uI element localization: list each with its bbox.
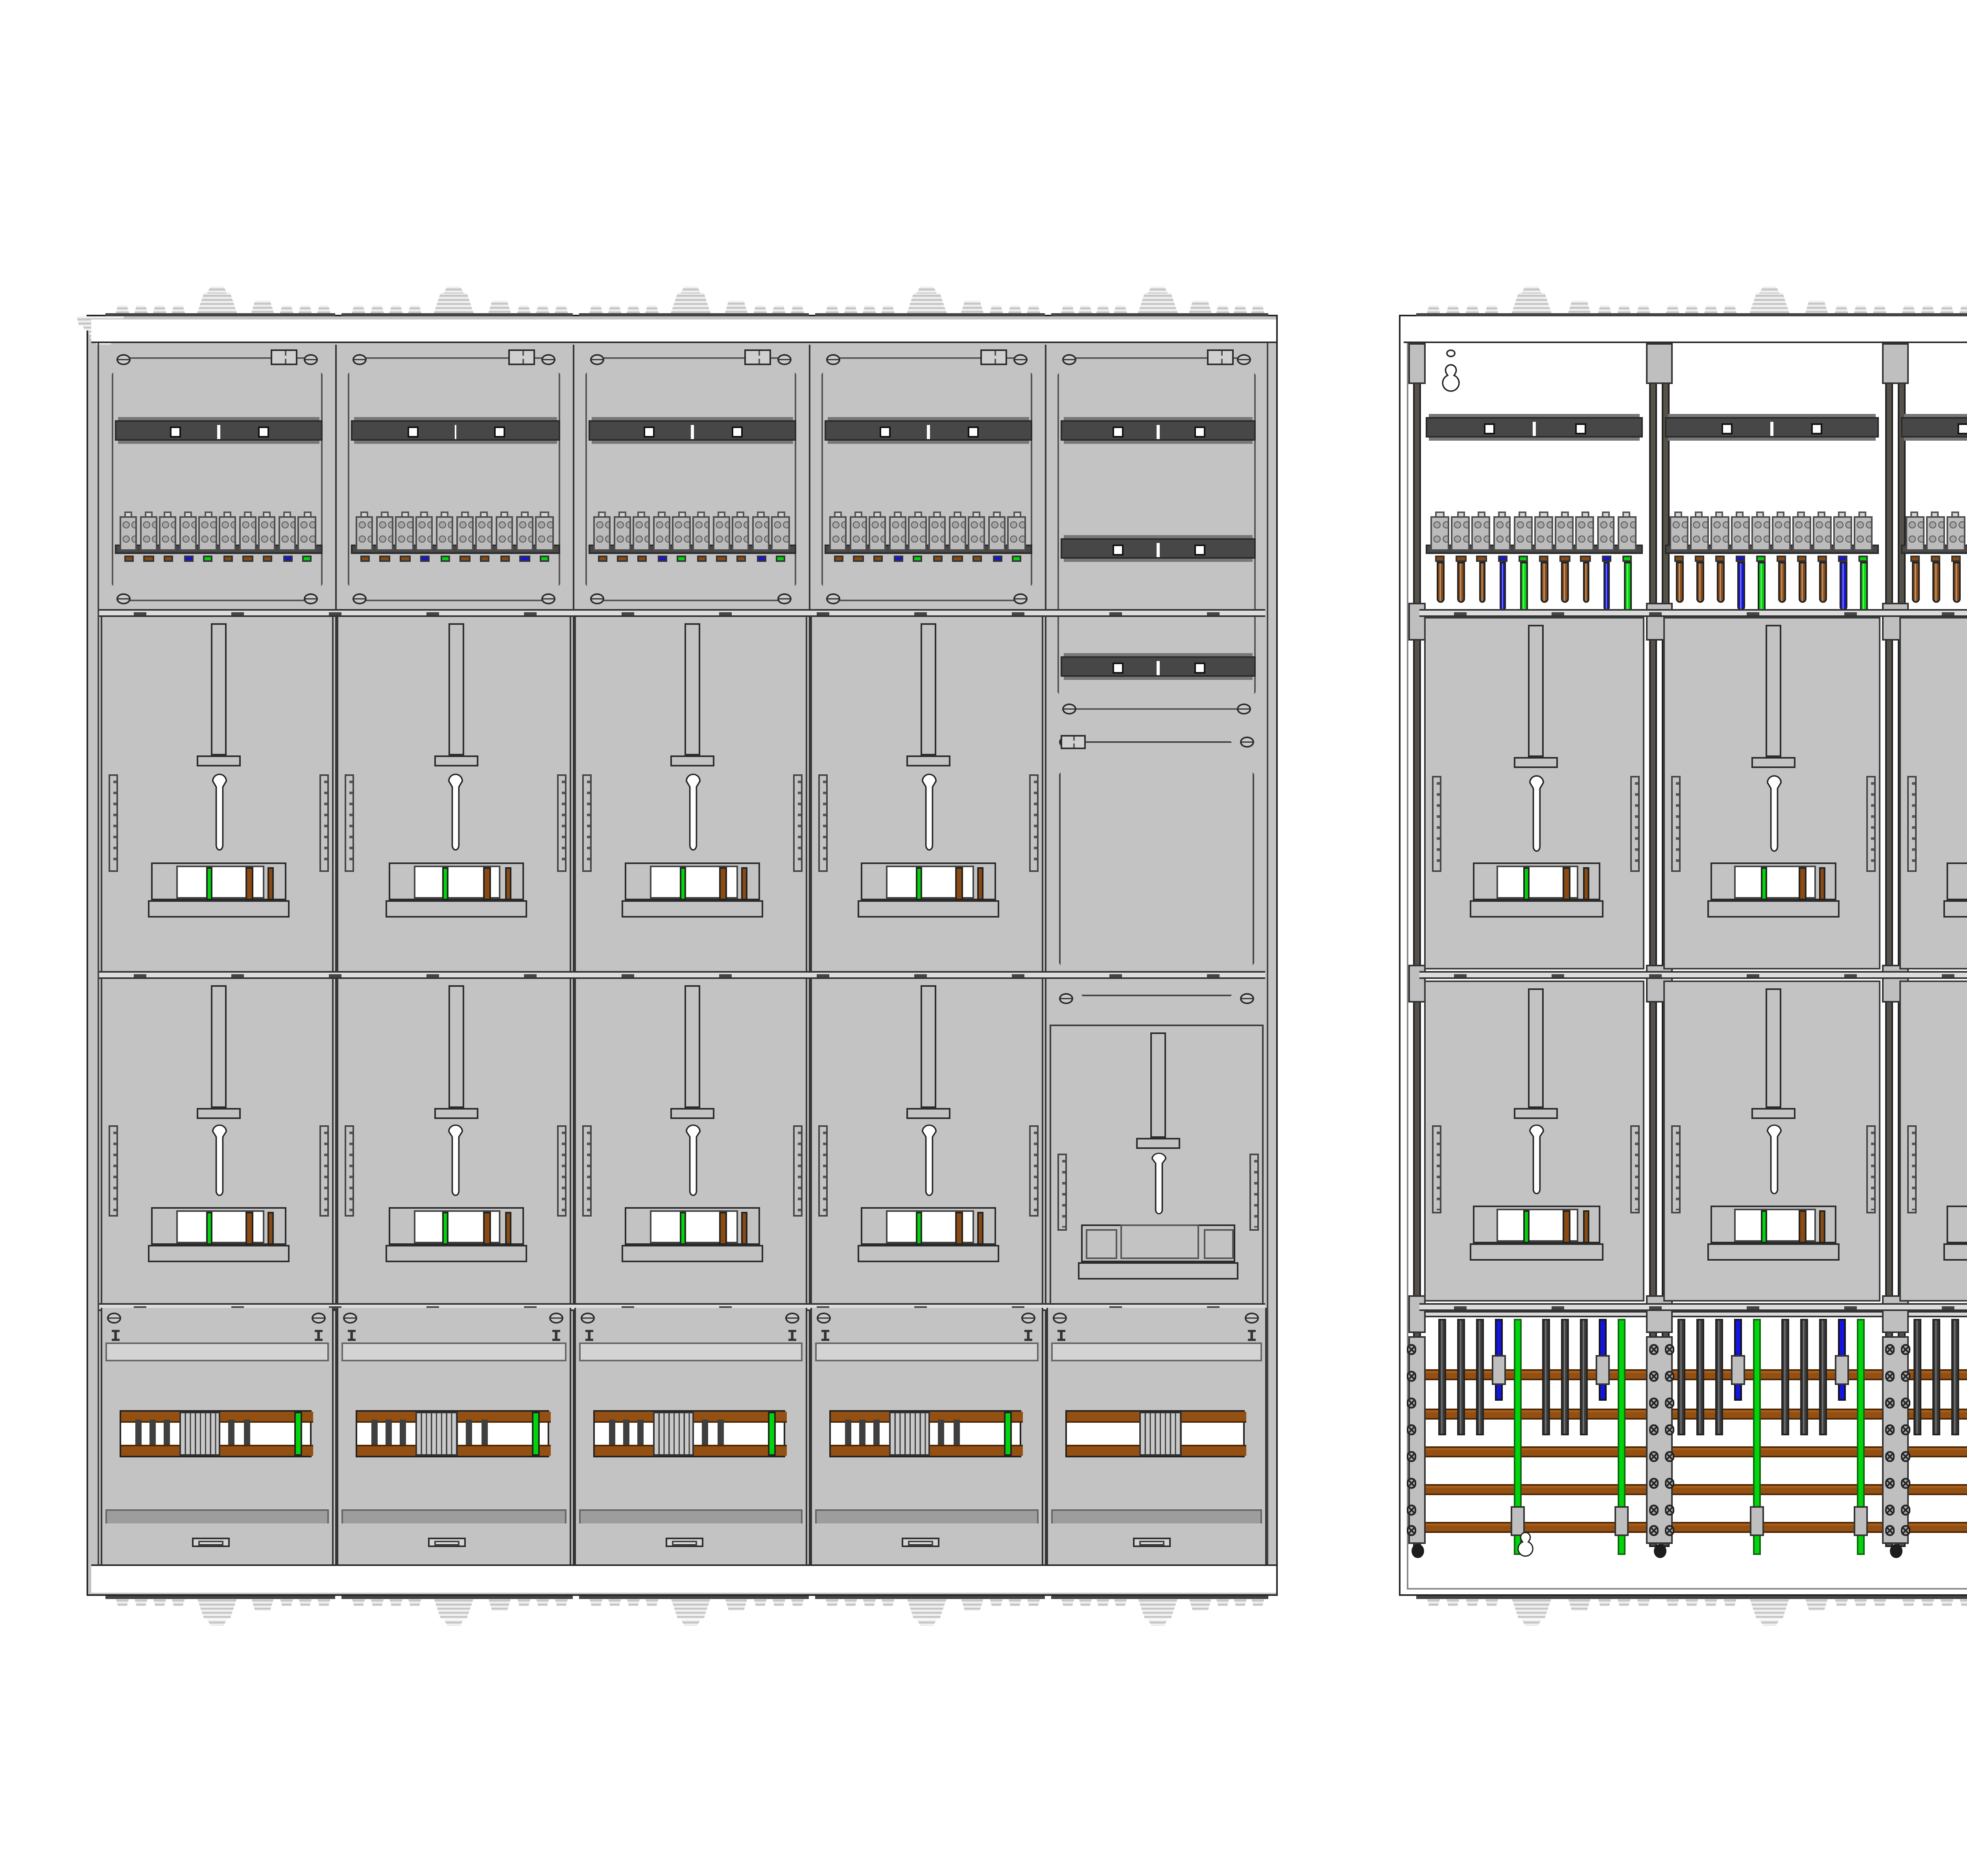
terminal-marker-blue bbox=[183, 556, 193, 562]
phillips-screw-icon bbox=[1648, 1525, 1659, 1535]
meter-panel bbox=[1663, 617, 1880, 969]
wire-brown bbox=[1582, 562, 1589, 603]
slotted-screw-icon bbox=[352, 354, 367, 365]
cable-entry-knockout bbox=[488, 1597, 511, 1611]
terminal-marker-blue bbox=[520, 556, 530, 562]
terminal-marker-brown bbox=[1930, 556, 1941, 562]
rib-section bbox=[652, 1412, 694, 1456]
side-rail-dots bbox=[1676, 1132, 1678, 1211]
seam-tab bbox=[1844, 612, 1857, 616]
wire-phase bbox=[1542, 1319, 1549, 1435]
din-rail-edge-bottom bbox=[354, 441, 557, 444]
wire-phase bbox=[1800, 1319, 1807, 1435]
stripe-brown bbox=[246, 1212, 254, 1245]
terminal-block bbox=[988, 516, 1006, 551]
cable-entry-knockout-cap bbox=[1521, 286, 1542, 294]
meter-t-slot bbox=[1528, 625, 1544, 757]
cable-entry-knockout bbox=[197, 293, 238, 315]
phillips-screw-icon bbox=[1664, 1398, 1674, 1408]
din-rail bbox=[115, 420, 323, 441]
seam-tab bbox=[426, 974, 439, 978]
terminal-cell bbox=[1086, 1228, 1116, 1258]
rib-section bbox=[1138, 1412, 1181, 1456]
phillips-screw-icon bbox=[1884, 1451, 1895, 1461]
stripe-brown bbox=[742, 1212, 748, 1245]
din-rail-edge-bottom bbox=[1064, 559, 1253, 562]
terminal-marker-green bbox=[203, 556, 213, 562]
meter-t-slot bbox=[921, 985, 936, 1108]
meter-t-slot bbox=[211, 985, 227, 1108]
seam-tab bbox=[1844, 974, 1857, 978]
din-rail-slit bbox=[454, 425, 456, 439]
stripe-brown bbox=[978, 1212, 984, 1245]
terminal-marker-green bbox=[1012, 556, 1022, 562]
terminal-marker-brown bbox=[873, 556, 883, 562]
din-rail-slit bbox=[1157, 543, 1159, 557]
stripe-brown bbox=[1582, 1210, 1589, 1243]
din-rail-edge-top bbox=[1429, 413, 1640, 416]
meter-terminal-lip bbox=[1707, 1243, 1840, 1260]
cable-entry-knockout bbox=[197, 1597, 238, 1619]
right-cabinet-frame-view bbox=[1399, 315, 1967, 1596]
stripe-green bbox=[769, 1412, 776, 1456]
side-rail-dots bbox=[1912, 1132, 1914, 1211]
terminal-block bbox=[298, 516, 316, 551]
frame-side-line bbox=[98, 343, 99, 1564]
phillips-screw-icon bbox=[1648, 1478, 1659, 1488]
phillips-screw-icon bbox=[1406, 1398, 1416, 1408]
din-rail-edge-bottom bbox=[1064, 441, 1253, 444]
wire-blue bbox=[1499, 562, 1506, 611]
cable-entry-knockout bbox=[251, 1597, 274, 1611]
wire-green bbox=[1758, 562, 1765, 617]
meter-terminal-cover bbox=[625, 862, 760, 900]
meter-keyhole-slot bbox=[1765, 774, 1782, 855]
terminal-marker-brown bbox=[1476, 556, 1487, 562]
terminal-block bbox=[1555, 516, 1574, 551]
wire-brown bbox=[1933, 562, 1940, 603]
terminal-window bbox=[651, 866, 737, 899]
wire-brown bbox=[1819, 562, 1827, 603]
din-rail bbox=[1061, 420, 1256, 441]
terminal-block bbox=[1792, 516, 1810, 551]
terminal-block bbox=[889, 516, 906, 551]
slotted-screw-icon bbox=[826, 593, 840, 604]
terminal-marker-brown bbox=[853, 556, 863, 562]
stripe-brown bbox=[483, 1212, 491, 1245]
meter-side-rail bbox=[1907, 1125, 1917, 1214]
phillips-screw-icon bbox=[1900, 1525, 1910, 1535]
terminal-block bbox=[1772, 516, 1790, 551]
cable-entry-knockout-cap bbox=[917, 286, 937, 294]
contact-pin bbox=[163, 1420, 170, 1445]
terminal-marker-brown bbox=[1694, 556, 1705, 562]
terminal-window bbox=[1735, 866, 1816, 899]
terminal-marker-blue bbox=[756, 556, 766, 562]
terminal-block bbox=[1833, 516, 1851, 551]
handle-slot-inner bbox=[672, 1541, 697, 1545]
meter-terminal-cover bbox=[388, 862, 523, 900]
slotted-screw-icon bbox=[1062, 354, 1076, 365]
slotted-screw-icon bbox=[312, 1313, 326, 1324]
terminal-marker-brown bbox=[500, 556, 510, 562]
meter-t-foot bbox=[1514, 1108, 1558, 1119]
profile-bracket bbox=[1646, 343, 1673, 384]
knockout-flange-base bbox=[1416, 1595, 1655, 1598]
din-rail-slit bbox=[217, 425, 220, 439]
stripe-brown bbox=[1819, 868, 1826, 901]
terminal-block bbox=[1451, 516, 1470, 551]
handle-slot bbox=[902, 1538, 939, 1547]
seam-tab bbox=[719, 612, 732, 616]
cable-entry-knockout bbox=[960, 301, 984, 315]
module-seam-rail bbox=[1419, 609, 1967, 616]
wire-green bbox=[1860, 562, 1867, 617]
slotted-screw-icon bbox=[1237, 354, 1251, 365]
din-rail-cutout bbox=[258, 427, 269, 438]
meter-side-rail bbox=[1057, 1153, 1067, 1231]
slotted-screw-icon bbox=[343, 1313, 357, 1324]
terminal-marker-brown bbox=[1674, 556, 1684, 562]
meter-terminal-cover bbox=[388, 1208, 523, 1245]
contact-pin bbox=[608, 1420, 614, 1445]
side-rail-dots bbox=[1437, 781, 1439, 869]
seam-tab bbox=[1109, 612, 1122, 616]
terminal-block bbox=[653, 516, 670, 551]
contact-pin bbox=[938, 1420, 945, 1445]
wire-phase bbox=[1781, 1319, 1788, 1435]
slotted-screw-icon bbox=[1237, 703, 1251, 715]
phillips-screw-icon bbox=[1884, 1371, 1895, 1381]
profile-bracket bbox=[1882, 343, 1909, 384]
meter-terminal-cover bbox=[1711, 1205, 1836, 1243]
wire-phase bbox=[1932, 1319, 1939, 1435]
terminal-marker-brown bbox=[243, 556, 253, 562]
meter-panel bbox=[1424, 980, 1644, 1302]
meter-panel bbox=[1899, 617, 1967, 969]
wire-brown bbox=[1458, 562, 1465, 603]
wire-brown bbox=[1717, 562, 1724, 603]
terminal-block bbox=[535, 516, 553, 551]
stripe-green bbox=[679, 1212, 686, 1245]
cable-entry-knockout bbox=[433, 1597, 474, 1619]
slotted-screw-icon bbox=[590, 354, 604, 365]
terminal-marker-brown bbox=[1797, 556, 1807, 562]
terminal-block bbox=[1751, 516, 1770, 551]
meter-keyhole-slot bbox=[210, 773, 227, 855]
bottom-module-dark-band bbox=[1051, 1509, 1262, 1525]
din-rail-edge-top bbox=[118, 416, 319, 419]
meter-terminal-cover bbox=[1472, 863, 1600, 901]
label-sticker bbox=[744, 349, 771, 365]
din-rail-edge-top bbox=[1064, 416, 1253, 419]
label-sticker bbox=[271, 349, 297, 365]
phillips-screw-icon bbox=[1648, 1371, 1659, 1381]
cable-entry-knockout-cap bbox=[207, 1619, 227, 1626]
terminal-marker-brown bbox=[1456, 556, 1466, 562]
aux-din-rail-panel bbox=[1046, 345, 1267, 722]
meter-terminal-cover bbox=[625, 1208, 760, 1245]
busbar-clamp bbox=[1730, 1355, 1745, 1385]
wire-phase bbox=[1951, 1319, 1958, 1435]
slotted-screw-icon bbox=[1245, 1313, 1259, 1324]
seam-tab bbox=[1649, 974, 1662, 978]
terminal-marker-brown bbox=[834, 556, 843, 562]
terminal-window bbox=[177, 866, 264, 899]
cable-entry-knockout bbox=[670, 1597, 711, 1619]
meter-side-rail bbox=[1866, 775, 1876, 872]
meter-t-slot bbox=[1766, 625, 1781, 757]
terminal-block bbox=[712, 516, 730, 551]
terminal-marker-green bbox=[1518, 556, 1528, 562]
bottom-module-dark-band bbox=[341, 1509, 566, 1525]
meter-side-rail bbox=[345, 1126, 354, 1216]
meter-side-rail bbox=[818, 774, 828, 872]
cable-entry-knockout bbox=[1511, 1597, 1552, 1619]
seam-tab bbox=[1747, 612, 1759, 616]
terminal-marker-brown bbox=[460, 556, 470, 562]
slotted-screw-icon bbox=[1062, 703, 1076, 715]
side-rail-dots bbox=[1871, 1132, 1873, 1211]
seam-tab bbox=[426, 612, 439, 616]
din-rail-cutout bbox=[1113, 545, 1124, 556]
slotted-screw-icon bbox=[107, 1313, 121, 1324]
slotted-screw-icon bbox=[581, 1313, 595, 1324]
terminal-marker-blue bbox=[657, 556, 667, 562]
din-rail-cutout bbox=[407, 427, 418, 438]
terminal-marker-brown bbox=[736, 556, 746, 562]
seam-tab bbox=[1207, 974, 1220, 978]
meter-terminal-lip bbox=[148, 1245, 290, 1263]
terminal-block bbox=[772, 516, 790, 551]
stripe-brown bbox=[505, 1212, 511, 1245]
knockout-flange-base bbox=[341, 1595, 573, 1598]
wire-brown bbox=[1562, 562, 1569, 603]
meter-keyhole-slot bbox=[1765, 1124, 1782, 1198]
din-rail-edge-bottom bbox=[1904, 438, 1967, 441]
slotted-screw-icon bbox=[777, 593, 792, 604]
cable-entry-knockout-cap bbox=[1759, 286, 1780, 294]
seam-tab bbox=[1109, 974, 1122, 978]
terminal-marker-green bbox=[1622, 556, 1632, 562]
profile-bracket bbox=[1408, 1295, 1426, 1333]
wire-phase bbox=[1457, 1319, 1464, 1435]
cable-entry-knockout bbox=[1805, 301, 1829, 315]
side-rail-dots bbox=[1635, 781, 1637, 869]
i-clip-icon bbox=[315, 1330, 322, 1341]
side-rail-dots bbox=[1062, 1160, 1065, 1228]
seam-tab bbox=[329, 974, 341, 978]
phillips-screw-icon bbox=[1664, 1525, 1674, 1535]
wire-blue bbox=[1738, 562, 1745, 611]
stripe-brown bbox=[505, 867, 511, 900]
terminal-block bbox=[476, 516, 493, 551]
din-rail-edge-top bbox=[1064, 652, 1253, 655]
meter-panel bbox=[101, 977, 334, 1306]
terminal-marker-blue bbox=[1497, 556, 1508, 562]
phillips-screw-icon bbox=[1900, 1505, 1910, 1515]
side-rail-dots bbox=[113, 781, 116, 869]
knockout-flange-base bbox=[1051, 313, 1268, 316]
terminal-marker-brown bbox=[400, 556, 410, 562]
fuse-strip-window bbox=[593, 1410, 785, 1457]
wire-phase bbox=[1913, 1319, 1921, 1435]
drawing-canvas bbox=[0, 0, 1967, 1876]
terminal-marker-brown bbox=[697, 556, 707, 562]
meter-panel bbox=[1050, 1025, 1264, 1308]
phillips-screw-icon bbox=[1884, 1525, 1895, 1535]
meter-terminal-lip bbox=[148, 900, 290, 918]
side-rail-dots bbox=[1912, 781, 1914, 869]
contact-pin bbox=[481, 1420, 487, 1445]
seam-tab bbox=[524, 974, 537, 978]
terminal-block bbox=[732, 516, 750, 551]
stripe-green bbox=[443, 867, 449, 900]
din-rail-cutout bbox=[1812, 423, 1823, 434]
meter-side-rail bbox=[1029, 774, 1039, 872]
bottom-module-dark-band bbox=[815, 1509, 1039, 1525]
side-rail-dots bbox=[798, 781, 800, 869]
meter-keyhole-slot bbox=[684, 1124, 701, 1200]
stripe-brown bbox=[720, 1212, 728, 1245]
profile-bracket bbox=[1408, 603, 1426, 641]
terminal-marker-green bbox=[1858, 556, 1868, 562]
meter-t-slot bbox=[1766, 988, 1781, 1108]
side-rail-dots bbox=[562, 781, 564, 869]
cable-entry-knockout-cap bbox=[1148, 1619, 1168, 1626]
wire-phase bbox=[1819, 1319, 1826, 1435]
frame-top-band bbox=[1404, 319, 1967, 343]
meter-terminal-cover bbox=[151, 862, 286, 900]
meter-t-slot bbox=[1150, 1032, 1166, 1138]
meter-terminal-cover bbox=[861, 862, 996, 900]
label-sticker bbox=[980, 349, 1007, 365]
meter-terminal-lip bbox=[385, 1245, 526, 1263]
contact-pin bbox=[244, 1420, 250, 1445]
cable-entry-knockout bbox=[670, 293, 711, 315]
terminal-marker-brown bbox=[1776, 556, 1786, 562]
wire-phase bbox=[1438, 1319, 1445, 1435]
seam-tab bbox=[1207, 612, 1220, 616]
cable-entry-knockout bbox=[1137, 293, 1178, 315]
rib-section bbox=[415, 1412, 458, 1456]
blank-cover-panel bbox=[1046, 729, 1267, 1010]
wire-phase bbox=[1580, 1319, 1587, 1435]
phillips-screw-icon bbox=[1406, 1451, 1416, 1461]
stripe-green bbox=[443, 1212, 449, 1245]
cable-entry-knockout-cap bbox=[917, 1619, 937, 1626]
knockout-flange-base bbox=[815, 1595, 1045, 1598]
meter-side-rail bbox=[1029, 1126, 1039, 1216]
terminal-block bbox=[456, 516, 473, 551]
knockout-flange-base bbox=[341, 313, 573, 316]
meter-side-rail bbox=[319, 1126, 329, 1216]
terminal-window bbox=[651, 1211, 737, 1244]
meter-side-rail bbox=[109, 1126, 118, 1216]
mounting-keyhole bbox=[1441, 364, 1460, 397]
seam-tab bbox=[1012, 612, 1024, 616]
seam-tab bbox=[524, 612, 537, 616]
meter-side-rail bbox=[1866, 1125, 1876, 1214]
terminal-marker-brown bbox=[144, 556, 153, 562]
contact-pin bbox=[371, 1420, 377, 1445]
terminal-block bbox=[968, 516, 986, 551]
terminal-marker-green bbox=[1756, 556, 1766, 562]
cable-entry-knockout-cap bbox=[1148, 286, 1168, 294]
meter-terminal-lip bbox=[858, 900, 999, 918]
meter-t-foot bbox=[906, 1108, 950, 1119]
din-rail-slit bbox=[1157, 425, 1159, 439]
busbar-terminal-module bbox=[810, 345, 1043, 614]
meter-t-slot bbox=[448, 985, 463, 1108]
wire-blue bbox=[1840, 562, 1847, 611]
stripe-green bbox=[295, 1412, 302, 1456]
wire-phase bbox=[1696, 1319, 1703, 1435]
phillips-screw-icon bbox=[1648, 1424, 1659, 1435]
terminal-block bbox=[435, 516, 453, 551]
stripe-green bbox=[1762, 1210, 1768, 1243]
module-seam-rail bbox=[99, 609, 1265, 616]
meter-side-rail bbox=[1630, 775, 1640, 872]
terminal-marker-brown bbox=[1951, 556, 1961, 562]
meter-terminal-lip bbox=[622, 900, 763, 918]
din-rail-edge-bottom bbox=[1064, 677, 1253, 680]
cable-entry-knockout-cap bbox=[681, 286, 701, 294]
side-rail-dots bbox=[587, 781, 589, 869]
terminal-block bbox=[159, 516, 177, 551]
knockout-flange-base bbox=[1891, 313, 1967, 316]
phillips-screw-icon bbox=[1884, 1344, 1895, 1354]
meter-t-foot bbox=[1514, 757, 1558, 768]
left-cabinet-front-view bbox=[87, 315, 1278, 1596]
terminal-block bbox=[1493, 516, 1511, 551]
cable-entry-knockout bbox=[1805, 1597, 1829, 1611]
seam-tab bbox=[1012, 974, 1024, 978]
din-rail-cutout bbox=[1195, 663, 1206, 674]
meter-side-rail bbox=[1432, 775, 1441, 872]
bottom-cover-panel bbox=[337, 1523, 571, 1564]
phillips-screw-icon bbox=[1406, 1505, 1416, 1515]
phillips-screw-icon bbox=[1900, 1398, 1910, 1408]
terminal-block bbox=[1926, 516, 1944, 551]
cable-entry-knockout bbox=[1749, 293, 1790, 315]
stripe-brown bbox=[742, 867, 748, 900]
slotted-screw-icon bbox=[826, 354, 840, 365]
meter-t-foot bbox=[434, 1108, 478, 1119]
stripe-green bbox=[1524, 868, 1530, 901]
knockout-flange-base bbox=[579, 313, 809, 316]
cable-entry-knockout bbox=[960, 1597, 984, 1611]
sticker-seal-line bbox=[522, 351, 524, 364]
profile-busbar-bracket bbox=[1408, 1336, 1426, 1544]
module-inner-outline bbox=[821, 357, 1032, 601]
terminal-marker-brown bbox=[952, 556, 962, 562]
label-sticker bbox=[1061, 735, 1086, 749]
din-rail-slit bbox=[927, 425, 929, 439]
terminal-block bbox=[1670, 516, 1688, 551]
terminal-window bbox=[1496, 1208, 1578, 1241]
stripe-brown bbox=[268, 1212, 274, 1245]
terminal-block bbox=[1596, 516, 1615, 551]
stripe-green bbox=[206, 1212, 212, 1245]
side-rail-dots bbox=[798, 1132, 800, 1213]
cable-entry-knockout bbox=[1568, 301, 1591, 315]
terminal-marker-green bbox=[303, 556, 312, 562]
terminal-marker-brown bbox=[617, 556, 627, 562]
seam-tab bbox=[622, 974, 634, 978]
terminal-marker-brown bbox=[124, 556, 134, 562]
seam-tab bbox=[1649, 1306, 1662, 1310]
